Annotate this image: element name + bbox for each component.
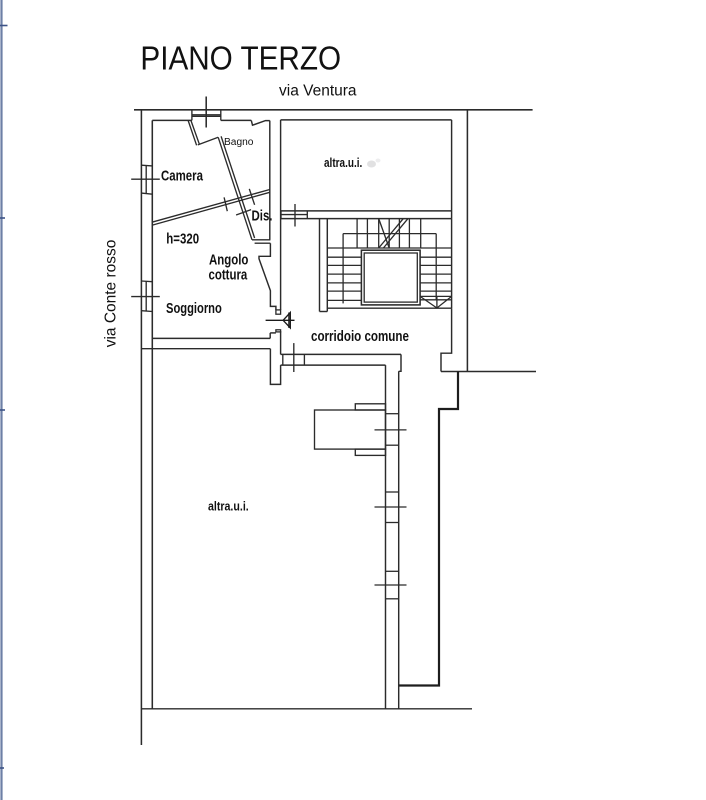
svg-text:via Ventura: via Ventura [279,83,357,100]
svg-text:Camera: Camera [161,167,204,184]
svg-text:cottura: cottura [209,266,248,283]
svg-text:h=320: h=320 [166,230,199,247]
svg-text:altra.u.i.: altra.u.i. [324,157,362,170]
svg-text:Bagno: Bagno [224,137,254,148]
svg-text:Soggiorno: Soggiorno [166,300,222,317]
svg-text:via Conte rosso: via Conte rosso [103,240,120,348]
svg-text:corridoio comune: corridoio comune [311,328,409,345]
svg-text:Dis.: Dis. [252,207,273,224]
svg-text:altra.u.i.: altra.u.i. [208,500,249,514]
svg-text:PIANO TERZO: PIANO TERZO [140,40,341,77]
